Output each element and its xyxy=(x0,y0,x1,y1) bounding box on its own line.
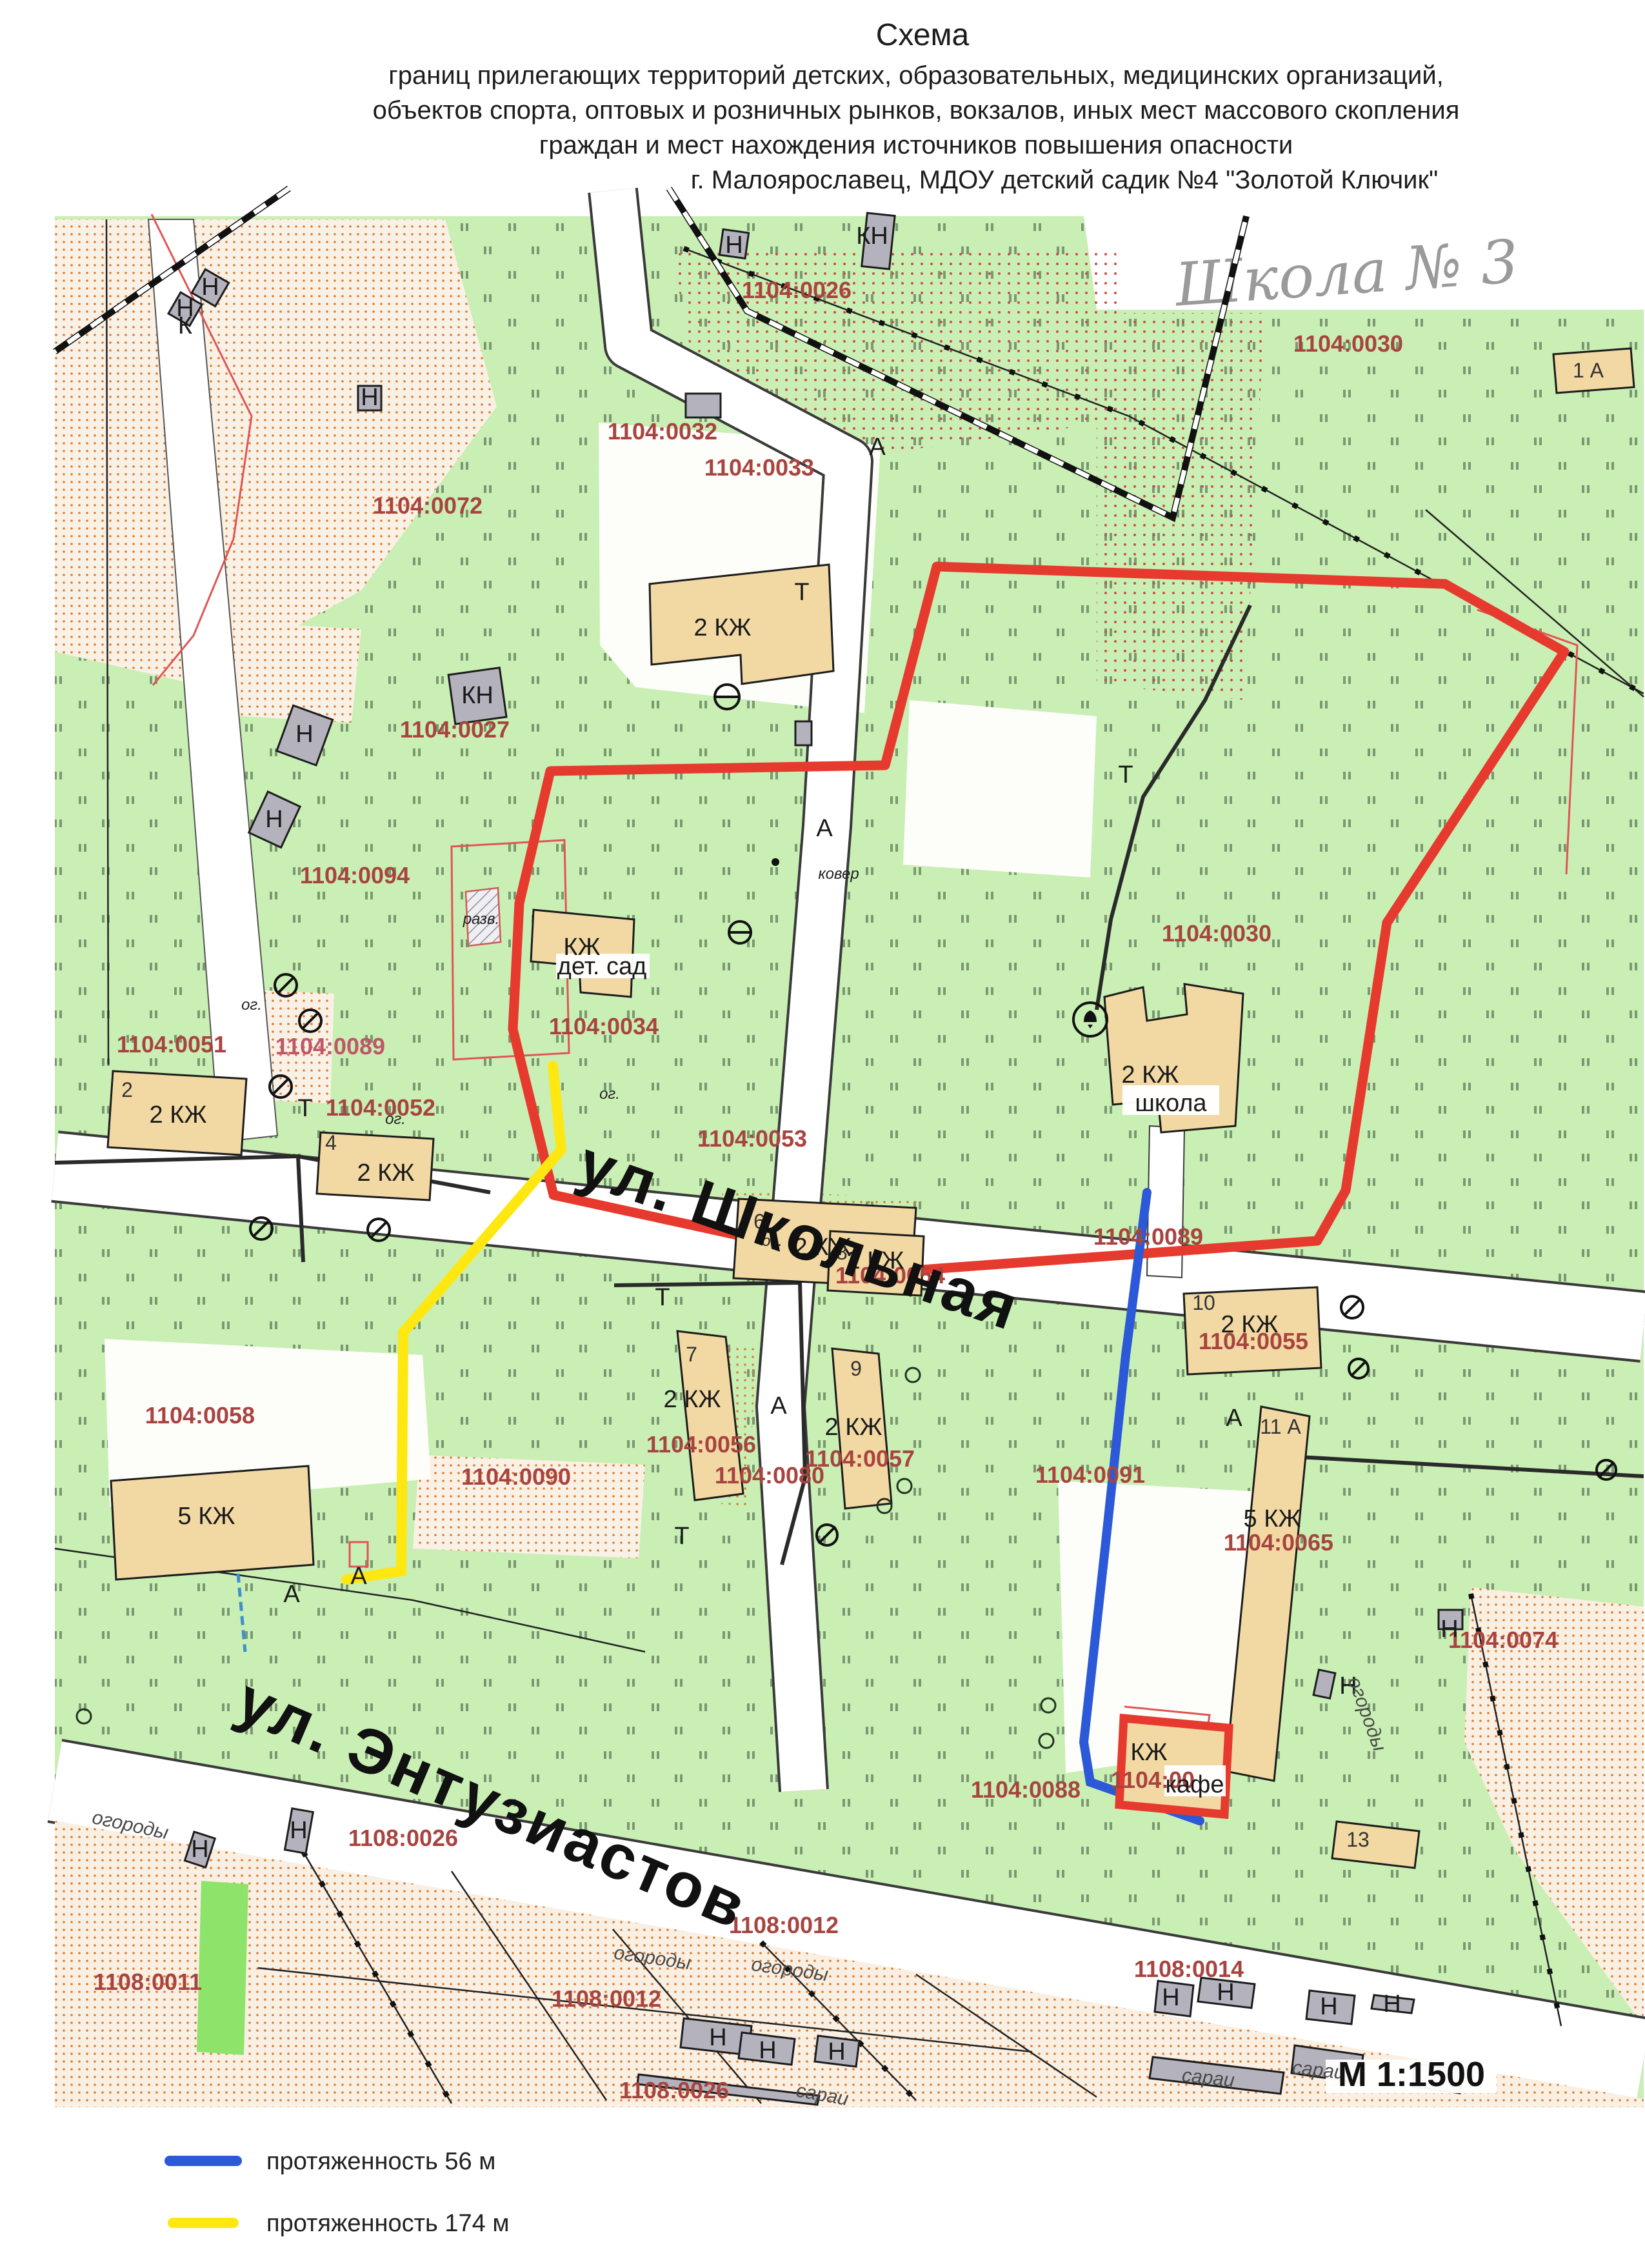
building-label: 2 КЖ xyxy=(357,1159,415,1187)
n-mark: Н xyxy=(828,2038,845,2065)
n-mark: Н xyxy=(1217,1979,1234,2006)
parcel-label: 1108:0026 xyxy=(619,2077,729,2103)
doc-subtitle-3: граждан и мест нахождения источников пов… xyxy=(539,131,1293,159)
scanned-map-page: Схема границ прилегающих территорий детс… xyxy=(0,0,1645,2265)
n-mark: Н xyxy=(1441,1616,1458,1643)
doc-location-line: г. Малоярославец, МДОУ детский садик №4 … xyxy=(691,166,1438,194)
parcel-label: 1104:0094 xyxy=(300,862,410,888)
building-label: 2 КЖ xyxy=(1221,1311,1279,1338)
parcel-label: 1108:0012 xyxy=(552,1985,661,2012)
house-number: 4 xyxy=(325,1131,337,1154)
legend: протяженность 56 м протяженность 174 м xyxy=(170,2148,510,2237)
road-mark-a: А xyxy=(869,434,886,461)
og-label: ог. xyxy=(599,1085,620,1103)
n-mark: Н xyxy=(1383,1991,1401,2018)
kover-label: ковер xyxy=(818,865,859,883)
legend-blue-label: протяженность 56 м xyxy=(266,2148,495,2175)
parcel-label: 1104:0058 xyxy=(145,1402,255,1429)
parcel-label: 1104:0032 xyxy=(608,418,717,445)
building-label: КН xyxy=(856,223,888,250)
house-number: 2 xyxy=(121,1078,133,1101)
n-mark: Н xyxy=(361,384,378,411)
parcel-label: 1104:0026 xyxy=(742,277,852,303)
parcel-label: 1104:0056 xyxy=(646,1431,756,1458)
utility-mark-t: Т xyxy=(297,1095,312,1122)
parcel-label: 1104:0080 xyxy=(715,1462,824,1489)
ruin-label: разв. xyxy=(463,910,500,928)
n-mark: Н xyxy=(1162,1984,1179,2011)
og-label: ог. xyxy=(385,1110,406,1128)
parcel-label: 1108:0011 xyxy=(94,1969,202,1995)
parcel-label: 1108:0026 xyxy=(348,1825,458,1851)
doc-subtitle-1: границ прилегающих территорий детских, о… xyxy=(388,61,1444,90)
parcel-label: 1104:0089 xyxy=(1093,1223,1203,1250)
n-mark: Н xyxy=(191,1836,208,1863)
n-mark: Н xyxy=(1320,1993,1337,2020)
house-number: 11 А xyxy=(1260,1415,1301,1438)
parcel-label: 1108:0012 xyxy=(729,1912,839,1938)
road-mark-a: А xyxy=(770,1392,787,1420)
building-label: КН xyxy=(461,682,494,709)
road-mark-a: А xyxy=(1226,1405,1242,1432)
parcel-label: 1104:0065 xyxy=(1224,1529,1333,1556)
building-label: 2 КЖ xyxy=(664,1386,721,1413)
parcel-label: 1104:0034 xyxy=(549,1013,659,1039)
road-mark-a: А xyxy=(816,815,833,842)
parcel-label: 1104:0052 xyxy=(326,1094,435,1121)
parcel-label: 1108:0014 xyxy=(1134,1956,1244,1982)
n-mark: Н xyxy=(725,232,743,259)
utility-mark-t: Т xyxy=(794,579,809,606)
utility-mark-t: Т xyxy=(655,1284,670,1311)
utility-mark-t: Т xyxy=(674,1523,689,1550)
n-mark: Н xyxy=(709,2024,726,2051)
parcel-label: 1104:0027 xyxy=(400,716,510,743)
n-mark: Н xyxy=(201,274,219,301)
parcel-label: 1104:0090 xyxy=(461,1463,571,1490)
house-number: 10 xyxy=(1192,1291,1215,1314)
building-label: 2 КЖ xyxy=(1122,1061,1179,1089)
house-number: 9 xyxy=(850,1357,862,1380)
house-number: 13 xyxy=(1346,1828,1370,1851)
parcel-label: 1104:0030 xyxy=(1162,920,1271,947)
quarter-mark-k: К xyxy=(178,312,192,339)
road-mark-a: А xyxy=(283,1581,300,1608)
point-symbol xyxy=(772,858,779,866)
cafe-label: кафе xyxy=(1166,1771,1224,1798)
map-canvas: Схема границ прилегающих территорий детс… xyxy=(0,0,1645,2265)
bright-green-wedge xyxy=(197,1881,248,2055)
n-mark: Н xyxy=(295,721,313,748)
parcel-label: 1104:0072 xyxy=(373,492,483,519)
building-label: 5 КЖ xyxy=(1244,1505,1301,1532)
house-number: 1 А xyxy=(1573,359,1604,382)
parcel-label: 1104:0033 xyxy=(704,454,814,481)
house-number: 7 xyxy=(686,1343,697,1366)
building-label: 2 КЖ xyxy=(694,614,752,641)
og-label: ог. xyxy=(241,996,262,1014)
n-mark: Н xyxy=(759,2037,776,2064)
parcel-label: 1104:0030 xyxy=(1293,330,1403,357)
legend-yellow-label: протяженность 174 м xyxy=(266,2210,510,2237)
doc-subtitle-2: объектов спорта, оптовых и розничных рын… xyxy=(373,96,1460,125)
parcel-label: 1104:0074 xyxy=(1448,1627,1558,1653)
building-label: 5 КЖ xyxy=(178,1503,235,1530)
n-mark: Н xyxy=(265,806,283,833)
scale-label: М 1:1500 xyxy=(1338,2055,1485,2094)
building-label: 2 КЖ xyxy=(150,1101,207,1129)
kindergarten-label: дет. сад xyxy=(557,953,647,980)
parcel-label: 1104:0091 xyxy=(1035,1461,1145,1488)
doc-title: Схема xyxy=(876,18,970,52)
building-label: КЖ xyxy=(1130,1739,1167,1766)
parcel-label: 1104:0089 xyxy=(275,1033,385,1059)
school-label: школа xyxy=(1135,1090,1207,1117)
n-mark: Н xyxy=(290,1817,307,1844)
parcel-label: 1104:0053 xyxy=(697,1125,807,1152)
parcel-label: 1104:0088 xyxy=(971,1776,1081,1803)
parcel-label: 1104:0051 xyxy=(117,1031,226,1058)
road-mark-a: А xyxy=(350,1563,367,1590)
building-label: 2 КЖ xyxy=(825,1414,882,1441)
utility-mark-t: Т xyxy=(1118,761,1133,788)
